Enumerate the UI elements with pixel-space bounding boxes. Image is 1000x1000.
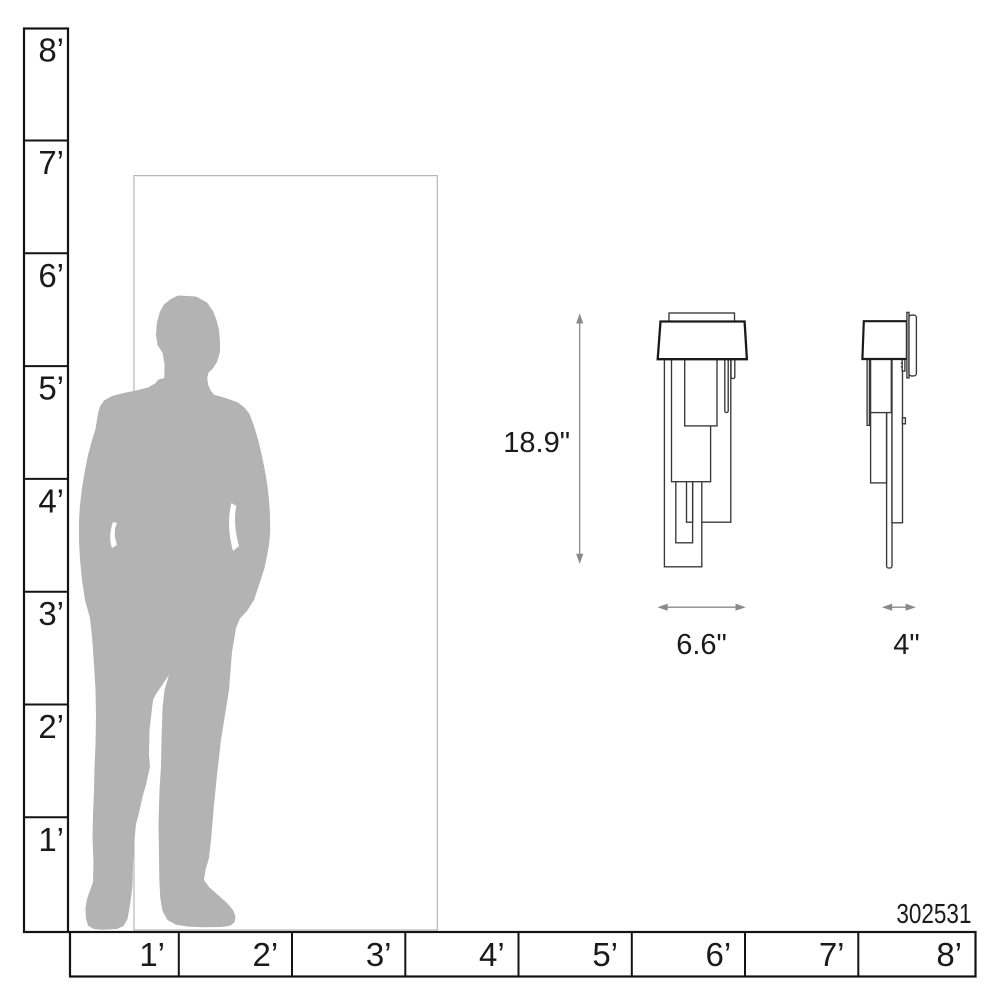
svg-text:3’: 3’ — [366, 936, 392, 973]
svg-text:5’: 5’ — [38, 370, 64, 407]
svg-text:3’: 3’ — [38, 595, 64, 632]
svg-text:4’: 4’ — [479, 936, 505, 973]
svg-text:6’: 6’ — [38, 257, 64, 294]
svg-text:6’: 6’ — [706, 936, 732, 973]
svg-text:302531: 302531 — [896, 899, 971, 930]
svg-text:5’: 5’ — [592, 936, 618, 973]
svg-text:7’: 7’ — [38, 144, 64, 181]
svg-text:2’: 2’ — [253, 936, 279, 973]
svg-text:7’: 7’ — [819, 936, 845, 973]
svg-text:8’: 8’ — [38, 32, 64, 69]
svg-text:4’: 4’ — [38, 482, 64, 519]
svg-text:6.6": 6.6" — [676, 629, 727, 661]
svg-text:8’: 8’ — [936, 936, 962, 973]
svg-text:1’: 1’ — [38, 821, 64, 858]
svg-text:4": 4" — [893, 629, 919, 661]
svg-text:18.9": 18.9" — [503, 427, 570, 459]
svg-text:2’: 2’ — [38, 708, 64, 745]
svg-text:1’: 1’ — [139, 936, 165, 973]
